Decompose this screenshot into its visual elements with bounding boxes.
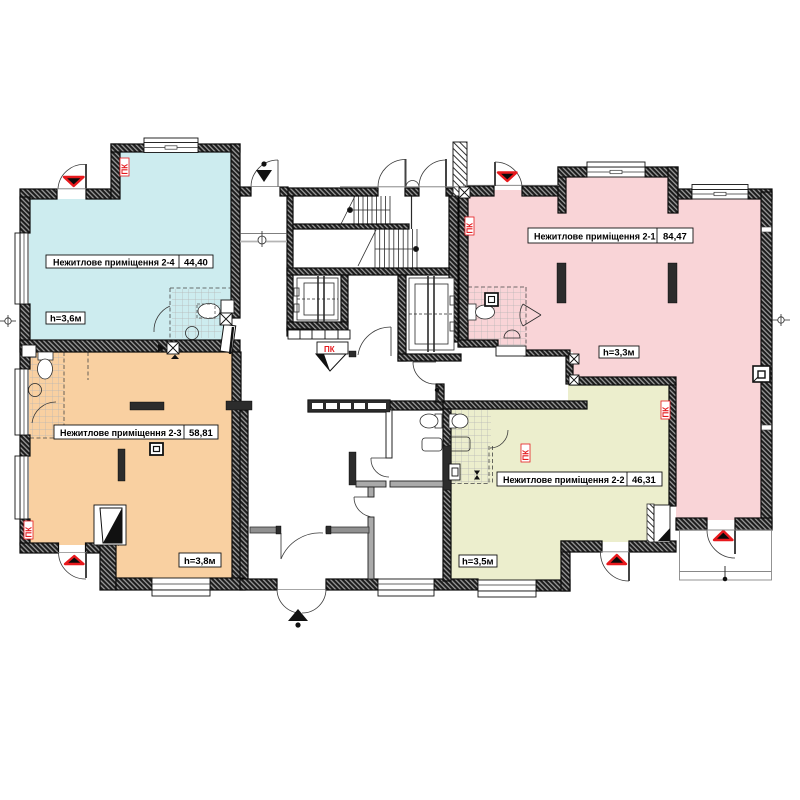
svg-text:h=3,6м: h=3,6м [50,314,82,325]
svg-text:h=3,8м: h=3,8м [184,556,216,567]
svg-text:ПК: ПК [466,223,475,234]
svg-text:Нежитлове приміщення 2-2: Нежитлове приміщення 2-2 [503,475,624,485]
svg-text:ПК: ПК [25,527,34,538]
svg-text:ПК: ПК [662,407,671,418]
svg-text:58,81: 58,81 [189,428,213,439]
svg-text:h=3,5м: h=3,5м [462,557,494,568]
svg-text:44,40: 44,40 [184,258,208,269]
svg-text:Нежитлове приміщення 2-1: Нежитлове приміщення 2-1 [534,232,655,242]
svg-text:Нежитлове приміщення 2-3: Нежитлове приміщення 2-3 [60,428,181,438]
svg-text:46,31: 46,31 [632,475,656,486]
svg-text:h=3,3м: h=3,3м [603,348,635,359]
svg-text:ПК: ПК [121,164,130,175]
svg-text:ПК: ПК [522,450,531,461]
svg-text:ПК: ПК [324,345,335,354]
svg-text:Нежитлове приміщення 2-4: Нежитлове приміщення 2-4 [53,258,174,268]
svg-text:84,47: 84,47 [663,232,687,243]
